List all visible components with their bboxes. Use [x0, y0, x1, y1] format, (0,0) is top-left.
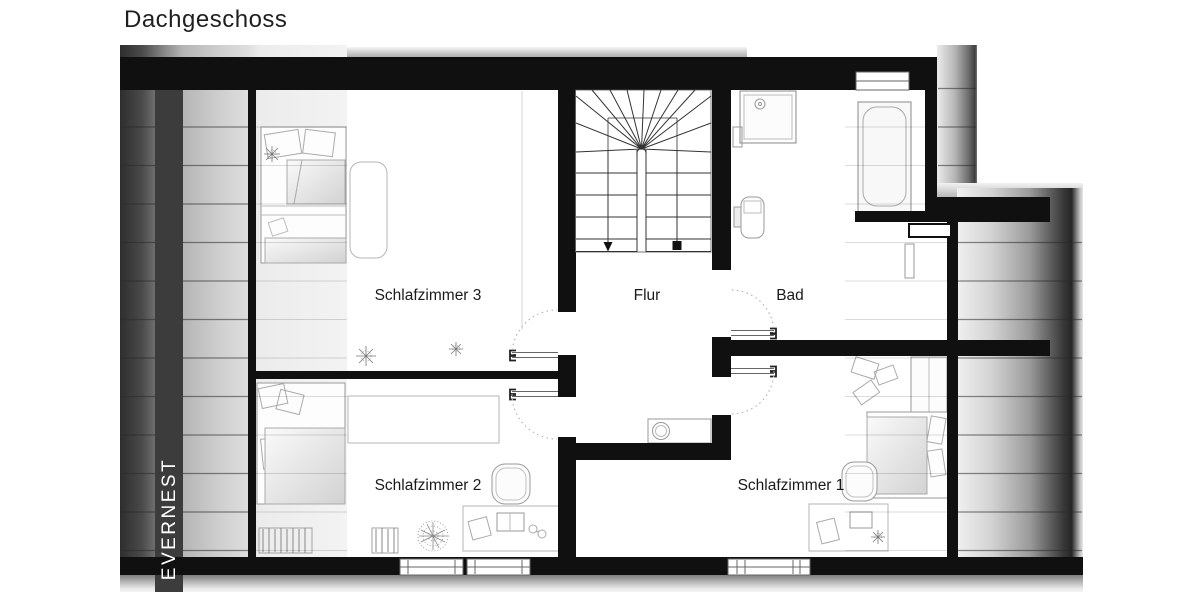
window-sz2-right [467, 559, 530, 575]
shower-icon [740, 91, 796, 143]
window-bad-top [856, 72, 909, 90]
bathtub-icon [858, 102, 911, 213]
wall-flur-bottom [558, 443, 731, 460]
wall-top [120, 57, 932, 90]
watermark-text: EVERNEST [156, 449, 184, 589]
furniture-schlafzimmer-1 [809, 357, 948, 551]
towel-radiator [905, 244, 914, 278]
stair-start-marker [673, 241, 682, 250]
window-sz2-left [400, 559, 463, 575]
wall-flur-left-mid [558, 355, 576, 397]
wall-flur-left-upper [558, 90, 576, 312]
fixtures-bad [733, 91, 914, 278]
wall-divider-bedrooms-left [256, 371, 558, 379]
room-label-schlafzimmer-1: Schlafzimmer 1 [738, 477, 845, 495]
room-label-schlafzimmer-3: Schlafzimmer 3 [375, 287, 482, 305]
wall-step-left [855, 211, 930, 222]
staircase [576, 90, 712, 252]
furniture-schlafzimmer-3 [261, 91, 522, 366]
room-label-schlafzimmer-2: Schlafzimmer 2 [375, 477, 482, 495]
door-swing-arcs [512, 290, 774, 439]
wall-niche [909, 224, 951, 237]
knee-wall-right-lower [947, 222, 958, 557]
knee-wall-left [248, 90, 256, 557]
wall-step [925, 197, 1050, 222]
furniture-schlafzimmer-2 [257, 383, 562, 553]
wall-bottom [120, 557, 1083, 575]
room-label-flur: Flur [634, 287, 661, 305]
floor-plan-page: Dachgeschoss EVERNEST Schlafzimmer 3 Flu… [0, 0, 1200, 600]
window-sz1 [728, 559, 810, 575]
room-label-bad: Bad [776, 287, 804, 305]
page-title: Dachgeschoss [124, 6, 287, 34]
door-leaf-ticks [510, 329, 776, 400]
knee-wall-right-upper [925, 57, 937, 197]
wall-flur-right-upper [712, 90, 731, 270]
wall-divider-bad-sz1 [712, 340, 1050, 356]
doors [510, 290, 776, 439]
toilet-icon [734, 197, 764, 238]
furniture-flur [648, 419, 711, 443]
